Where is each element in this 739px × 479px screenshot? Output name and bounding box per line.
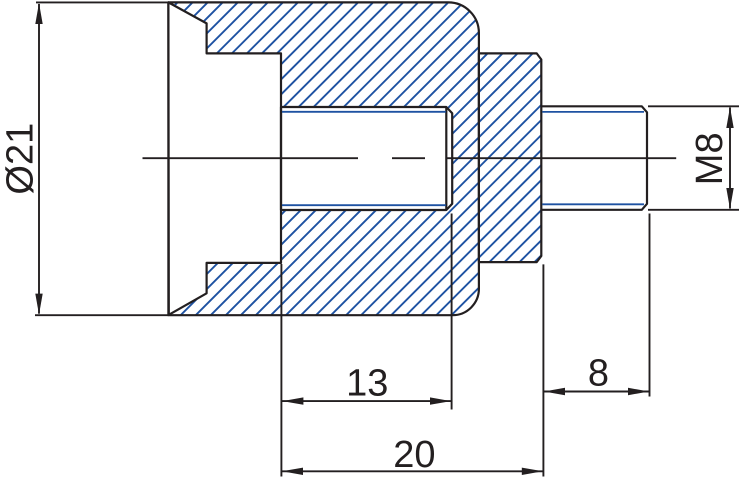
svg-text:13: 13 xyxy=(346,363,388,405)
svg-text:Ø21: Ø21 xyxy=(0,123,42,195)
svg-text:M8: M8 xyxy=(689,132,731,185)
svg-text:20: 20 xyxy=(393,434,435,476)
svg-text:8: 8 xyxy=(588,353,609,395)
